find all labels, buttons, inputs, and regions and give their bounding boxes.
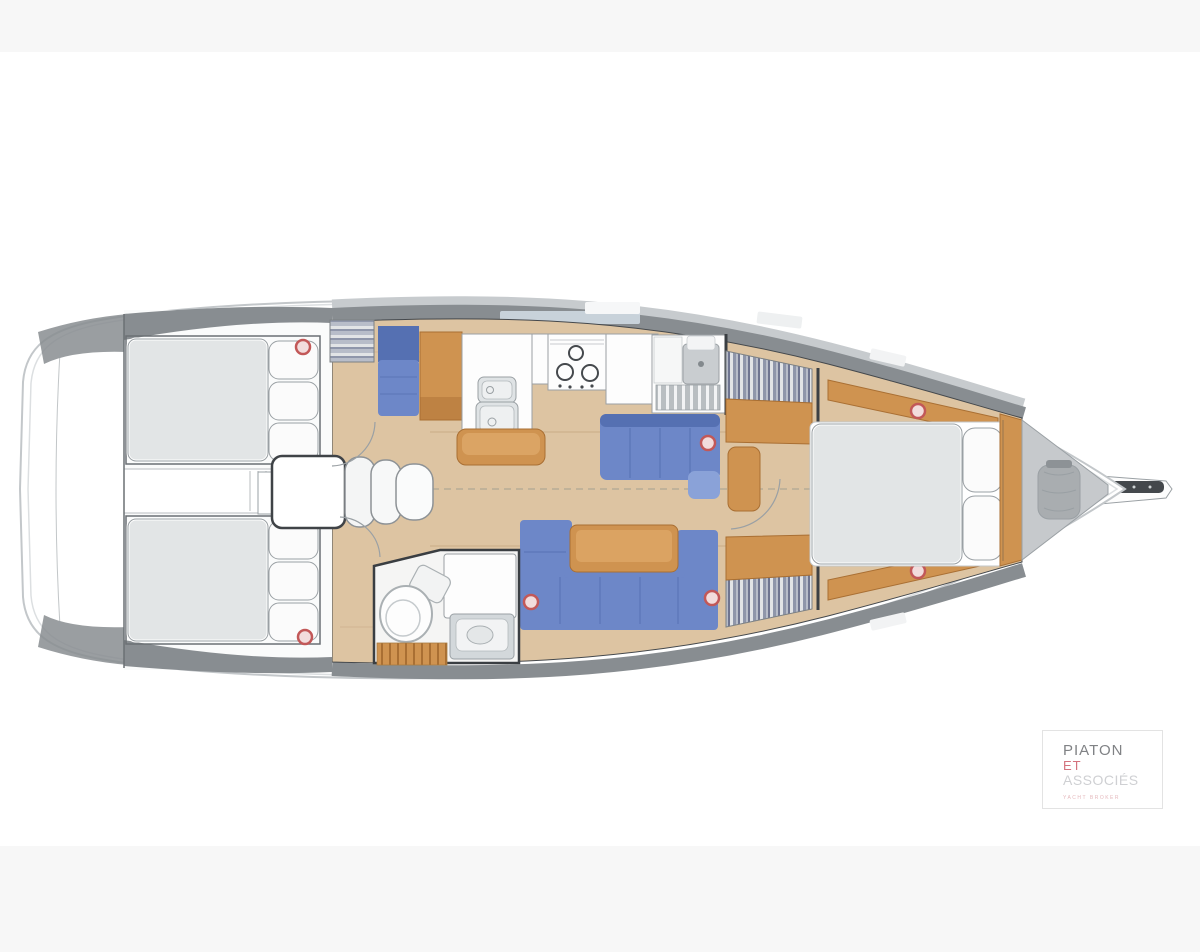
head-cabinet: [654, 337, 682, 383]
double-berth-mattress: [128, 519, 268, 641]
galley-counter-fridge: [606, 334, 658, 404]
aft-cabin-starboard: [126, 516, 320, 644]
porthole: [298, 630, 312, 644]
locker-cabinet-bottom: [726, 535, 812, 580]
anchor-chain-bag: [1038, 460, 1080, 519]
boat-floor-plan: [0, 52, 1200, 952]
chart-seat-back: [378, 326, 419, 362]
page-background: { "page": { "background": "#f7f7f7", "ph…: [0, 0, 1200, 900]
hanging-locker-aft: [330, 320, 374, 362]
logo-tagline: YACHT BROKER: [1063, 791, 1162, 806]
pillow: [963, 496, 1002, 560]
porthole: [296, 340, 310, 354]
logo-name: PIATON: [1063, 743, 1162, 758]
porthole: [524, 595, 538, 609]
galley-double-sink: [476, 377, 518, 436]
pillow: [269, 562, 318, 600]
deck-hatch-2: [756, 311, 802, 328]
logo-associes: ASSOCIÉS: [1063, 773, 1162, 788]
counter-segment: [532, 334, 548, 384]
double-berth-mattress: [128, 339, 268, 461]
photo-area: [0, 52, 1200, 846]
double-berth-mattress: [812, 424, 962, 564]
chart-seat: [378, 360, 419, 416]
island-berth: [810, 422, 1006, 566]
anchor-locker: [1022, 420, 1108, 560]
porthole: [705, 591, 719, 605]
aft-cabin-port: [126, 336, 320, 464]
vanity-seat: [728, 447, 760, 511]
forward-head: [652, 334, 726, 415]
companionway-landing: [272, 456, 345, 528]
porthole: [911, 404, 925, 418]
porthole: [701, 436, 715, 450]
stove: [548, 334, 606, 390]
settee-corner-seat: [688, 471, 720, 499]
pillow: [269, 382, 318, 420]
shower-grate: [656, 385, 720, 410]
teak-grate: [377, 643, 447, 665]
piaton-logo: PIATON ET ASSOCIÉS YACHT BROKER: [1042, 730, 1163, 809]
companionway-steps: [345, 457, 433, 527]
logo-et: ET: [1063, 758, 1162, 773]
saloon-settee-lower: [524, 524, 719, 626]
pillow: [963, 428, 1002, 492]
deck-hatch-1: [585, 302, 640, 314]
locker-cabinet-top: [726, 399, 812, 444]
shower-counter: [444, 554, 516, 618]
